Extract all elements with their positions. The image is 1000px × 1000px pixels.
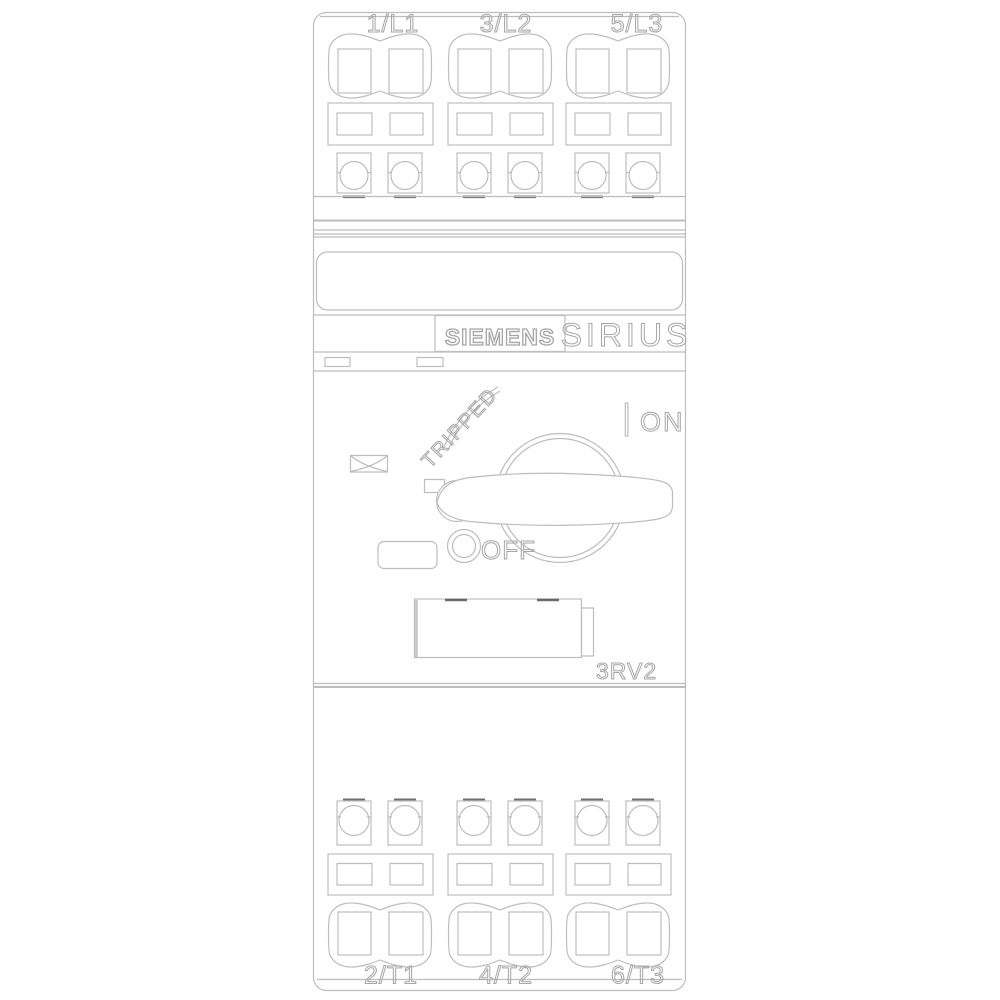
terminal-label-4T2: 4/T2 (479, 962, 533, 990)
terminal-label-6T3: 6/T3 (611, 962, 665, 990)
model-label: 3RV2 (596, 658, 657, 684)
switch-section: TRIPPED ON OFF 3RV2 (351, 384, 685, 684)
load-terminal-group-3[interactable] (566, 800, 671, 967)
line-terminal-group-3[interactable] (566, 34, 671, 197)
product-drawing-canvas: 1/L1 3/L2 5/L3 SIEMENS SIRIUS TRIPPED ON (0, 0, 1000, 1000)
upper-section-lines (314, 197, 685, 238)
bowtie-marking (351, 456, 388, 473)
load-terminal-group-1[interactable] (328, 800, 433, 967)
terminal-label-3L2: 3/L2 (480, 10, 533, 38)
line-terminal-group-1[interactable] (328, 34, 433, 197)
terminal-label-1L1: 1/L1 (367, 10, 420, 38)
terminal-label-5L3: 5/L3 (611, 10, 664, 38)
family-logo-text: SIRIUS (561, 317, 692, 353)
off-label: OFF (481, 535, 536, 565)
off-position-ring-inner (453, 535, 476, 558)
motor-starter-line-drawing: 1/L1 3/L2 5/L3 SIEMENS SIRIUS TRIPPED ON (0, 0, 1000, 1000)
line-terminal-group-2[interactable] (448, 34, 553, 197)
setting-dial-window[interactable] (415, 599, 594, 658)
rating-label-plate (317, 252, 683, 310)
rotary-handle-lever[interactable] (437, 473, 673, 525)
test-button[interactable] (378, 542, 437, 569)
band-slot-right (417, 358, 443, 367)
load-terminal-group-2[interactable] (448, 800, 553, 967)
terminal-label-2T1: 2/T1 (364, 962, 418, 990)
lower-section-divider (314, 684, 685, 688)
brand-band: SIEMENS SIRIUS (314, 315, 691, 371)
on-position-marker (625, 403, 628, 436)
band-slot-left (325, 358, 350, 367)
tripped-label: TRIPPED (418, 384, 503, 473)
on-label: ON (640, 407, 685, 437)
brand-logo-text: SIEMENS (445, 324, 556, 350)
